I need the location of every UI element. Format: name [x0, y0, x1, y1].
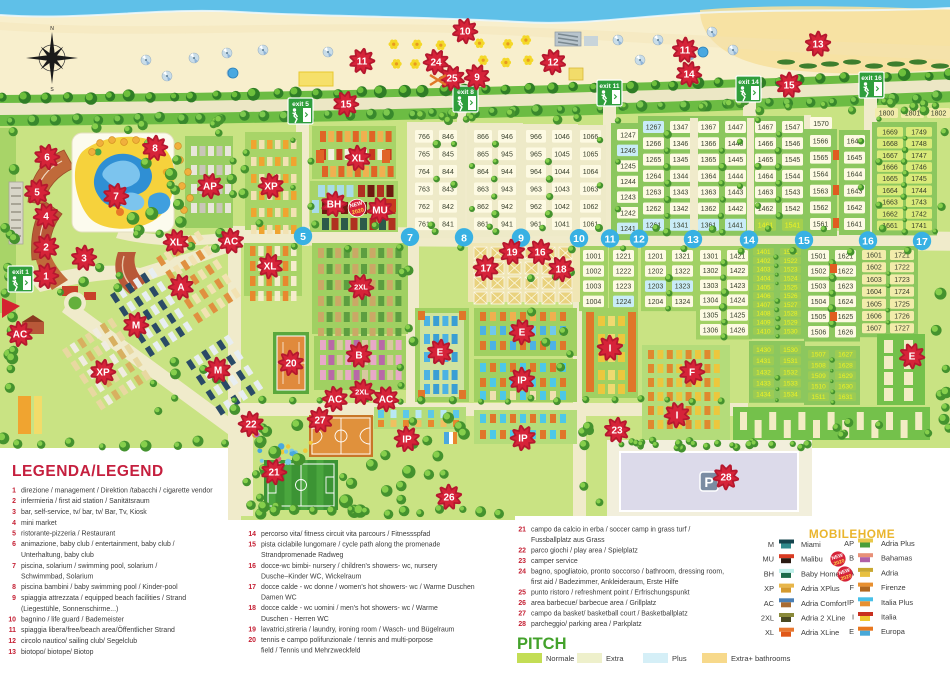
svg-text:762: 762: [418, 204, 430, 211]
svg-text:area barbecue/ barbecue area /: area barbecue/ barbecue area / Grillplat…: [531, 600, 657, 607]
svg-text:1544: 1544: [785, 173, 801, 180]
svg-text:1421: 1421: [730, 253, 746, 260]
svg-text:direzione / management / Direk: direzione / management / Direktion /taba…: [21, 488, 213, 495]
svg-text:1744: 1744: [911, 188, 927, 195]
svg-text:1726: 1726: [894, 314, 910, 321]
svg-text:1464: 1464: [758, 173, 774, 180]
svg-text:1364: 1364: [701, 173, 717, 180]
svg-text:ristorante-pizzeria / Restaura: ristorante-pizzeria / Restaurant: [21, 531, 115, 538]
svg-text:Firenze: Firenze: [881, 583, 906, 592]
svg-text:1362: 1362: [701, 206, 717, 213]
svg-text:1341: 1341: [673, 222, 689, 229]
svg-text:1511: 1511: [811, 394, 826, 401]
svg-text:1602: 1602: [866, 265, 882, 272]
svg-text:1263: 1263: [646, 190, 662, 197]
svg-text:1447: 1447: [728, 125, 744, 132]
svg-text:1045: 1045: [554, 151, 570, 158]
svg-text:parcheggio/ parking area / Par: parcheggio/ parking area / Parkplatz: [531, 621, 642, 628]
svg-text:1343: 1343: [673, 190, 689, 197]
svg-text:1002: 1002: [586, 269, 602, 276]
svg-text:1529: 1529: [783, 320, 798, 327]
svg-text:bagnino / life guard / Bademei: bagnino / life guard / Bademeister: [21, 617, 125, 624]
svg-text:27: 27: [314, 416, 326, 427]
svg-text:docce-wc bimbi- nursery / chil: docce-wc bimbi- nursery / children's sho…: [261, 563, 438, 570]
svg-text:966: 966: [530, 134, 542, 141]
svg-text:10: 10: [8, 617, 16, 624]
svg-text:22: 22: [245, 420, 257, 431]
svg-text:1267: 1267: [646, 125, 662, 132]
svg-text:24: 24: [518, 569, 526, 576]
svg-text:animazione, baby club / entert: animazione, baby club / entertainment, b…: [21, 541, 175, 548]
svg-text:1066: 1066: [583, 134, 599, 141]
svg-text:5: 5: [300, 231, 306, 243]
svg-text:1203: 1203: [648, 284, 664, 291]
svg-text:1242: 1242: [620, 210, 636, 217]
svg-text:1666: 1666: [882, 165, 898, 172]
svg-text:12: 12: [8, 638, 16, 645]
svg-text:19: 19: [248, 626, 256, 633]
svg-text:E: E: [909, 352, 916, 363]
svg-text:1402: 1402: [756, 258, 771, 265]
svg-text:Extra: Extra: [606, 654, 624, 663]
svg-text:841: 841: [442, 221, 454, 228]
svg-text:1668: 1668: [882, 141, 898, 148]
svg-text:1346: 1346: [673, 141, 689, 148]
svg-text:1301: 1301: [703, 253, 719, 260]
svg-text:2XL: 2XL: [761, 614, 774, 623]
svg-text:1347: 1347: [673, 125, 689, 132]
svg-text:(Liegestühle, Sonnenschirme...: (Liegestühle, Sonnenschirme...): [21, 606, 118, 613]
svg-text:1631: 1631: [838, 394, 853, 401]
svg-text:964: 964: [530, 169, 542, 176]
svg-text:21: 21: [518, 527, 526, 534]
svg-text:1565: 1565: [813, 155, 829, 162]
svg-text:exit 8: exit 8: [457, 89, 474, 96]
svg-text:Plus: Plus: [672, 654, 687, 663]
svg-text:XP: XP: [764, 584, 774, 593]
svg-text:field / Tennis und Mehrzweckfe: field / Tennis und Mehrzweckfeld: [261, 648, 361, 655]
svg-text:864: 864: [477, 169, 489, 176]
svg-text:1408: 1408: [756, 311, 771, 318]
svg-text:E: E: [849, 627, 854, 636]
svg-text:763: 763: [418, 186, 430, 193]
svg-text:1623: 1623: [838, 284, 854, 291]
svg-text:6: 6: [44, 153, 50, 164]
svg-text:XP: XP: [96, 368, 110, 379]
svg-text:1: 1: [12, 488, 16, 495]
svg-text:1545: 1545: [785, 157, 801, 164]
svg-text:AC: AC: [13, 330, 27, 341]
svg-text:1630: 1630: [838, 384, 853, 391]
svg-text:1467: 1467: [758, 125, 774, 132]
svg-text:1244: 1244: [620, 179, 636, 186]
svg-text:11: 11: [357, 57, 368, 68]
svg-text:8: 8: [461, 232, 467, 244]
svg-text:14: 14: [248, 531, 256, 538]
svg-text:764: 764: [418, 169, 430, 176]
svg-text:punto ristoro / refreshment po: punto ristoro / refreshment point / Erfr…: [531, 590, 690, 597]
svg-text:1662: 1662: [882, 211, 898, 218]
svg-text:5: 5: [12, 531, 16, 538]
svg-text:845: 845: [442, 151, 454, 158]
svg-text:IP: IP: [847, 598, 854, 607]
svg-text:1543: 1543: [785, 190, 801, 197]
svg-text:Normale: Normale: [546, 654, 574, 663]
svg-text:1507: 1507: [811, 352, 826, 359]
svg-text:943: 943: [501, 186, 513, 193]
svg-text:1442: 1442: [728, 206, 744, 213]
svg-text:Extra+ bathrooms: Extra+ bathrooms: [731, 654, 791, 663]
svg-text:1065: 1065: [583, 151, 599, 158]
svg-text:MU: MU: [372, 206, 388, 217]
svg-text:22: 22: [518, 548, 526, 555]
svg-text:parco giochi / play area / Spi: parco giochi / play area / Spielplatz: [531, 548, 638, 555]
svg-text:1445: 1445: [728, 157, 744, 164]
svg-text:20: 20: [285, 359, 297, 370]
svg-text:13: 13: [812, 40, 824, 51]
svg-text:Unterhaltung, baby club: Unterhaltung, baby club: [21, 552, 94, 559]
svg-text:1262: 1262: [646, 206, 662, 213]
svg-text:Adria XPlus: Adria XPlus: [801, 584, 840, 593]
svg-text:1243: 1243: [620, 195, 636, 202]
svg-text:28: 28: [720, 473, 732, 484]
svg-text:I: I: [852, 613, 854, 622]
svg-text:13: 13: [687, 234, 699, 246]
svg-text:766: 766: [418, 134, 430, 141]
svg-text:1532: 1532: [783, 369, 798, 376]
svg-text:1722: 1722: [894, 265, 910, 272]
svg-text:1526: 1526: [783, 293, 798, 300]
svg-text:Adria Comfort: Adria Comfort: [801, 599, 847, 608]
svg-text:1367: 1367: [701, 125, 717, 132]
svg-text:1528: 1528: [783, 311, 798, 318]
svg-text:spiaggia attrezzata / equipped: spiaggia attrezzata / equipped beach fac…: [21, 595, 186, 602]
svg-text:842: 842: [442, 204, 454, 211]
svg-text:1323: 1323: [675, 284, 691, 291]
svg-text:docce calde - wc uomini / men': docce calde - wc uomini / men's hot show…: [261, 605, 438, 612]
svg-text:Adria Plus: Adria Plus: [881, 539, 915, 548]
svg-text:865: 865: [477, 151, 489, 158]
svg-text:M: M: [214, 366, 222, 377]
svg-text:1527: 1527: [783, 302, 798, 309]
svg-text:1441: 1441: [728, 222, 744, 229]
svg-text:1743: 1743: [911, 200, 927, 207]
svg-text:17: 17: [480, 264, 492, 275]
svg-text:1525: 1525: [783, 284, 798, 291]
svg-text:14: 14: [683, 70, 695, 81]
svg-text:1342: 1342: [673, 206, 689, 213]
svg-text:1410: 1410: [756, 328, 771, 335]
svg-text:862: 862: [477, 204, 489, 211]
svg-text:1724: 1724: [894, 289, 910, 296]
svg-text:1523: 1523: [783, 267, 798, 274]
svg-text:bar, self-service, tv/ bar, tv: bar, self-service, tv/ bar, tv/ Bar, Tv,…: [21, 509, 147, 516]
svg-text:1463: 1463: [758, 190, 774, 197]
svg-text:F: F: [689, 368, 695, 379]
svg-text:mini market: mini market: [21, 520, 57, 527]
svg-text:exit 5: exit 5: [292, 101, 309, 108]
svg-text:Adria 2 XLine: Adria 2 XLine: [801, 614, 845, 623]
svg-text:1423: 1423: [730, 283, 746, 290]
svg-text:campo da calcio in erba / socc: campo da calcio in erba / soccer camp in…: [531, 527, 690, 534]
svg-text:25: 25: [446, 74, 458, 85]
svg-text:1748: 1748: [911, 141, 927, 148]
svg-text:1570: 1570: [813, 121, 829, 128]
svg-text:PITCH: PITCH: [517, 635, 567, 653]
svg-text:3: 3: [12, 509, 16, 516]
svg-text:1305: 1305: [703, 313, 719, 320]
svg-text:1501: 1501: [811, 253, 827, 260]
svg-text:23: 23: [611, 426, 623, 437]
svg-text:1530: 1530: [783, 328, 798, 335]
svg-text:Strandpromenade Radweg: Strandpromenade Radweg: [261, 552, 344, 559]
svg-text:1534: 1534: [783, 392, 798, 399]
svg-text:1509: 1509: [811, 373, 826, 380]
svg-text:1800: 1800: [879, 111, 895, 118]
svg-text:1505: 1505: [811, 314, 827, 321]
svg-text:962: 962: [530, 204, 542, 211]
svg-text:Dusche–Kinder WC, Wickelraum: Dusche–Kinder WC, Wickelraum: [261, 573, 362, 580]
svg-text:infermieria / first aid statio: infermieria / first aid station / Sanitä…: [21, 498, 150, 505]
svg-text:26: 26: [518, 600, 526, 607]
svg-text:1541: 1541: [785, 222, 801, 229]
svg-text:Schwimmbad, Solarium: Schwimmbad, Solarium: [21, 574, 94, 581]
svg-text:2: 2: [43, 243, 49, 254]
svg-text:8: 8: [152, 144, 158, 155]
svg-text:exit 14: exit 14: [738, 79, 759, 86]
svg-text:1746: 1746: [911, 165, 927, 172]
svg-text:BH: BH: [764, 569, 774, 578]
svg-text:piscina bambini / baby swimmin: piscina bambini / baby swimming pool / K…: [21, 584, 178, 591]
svg-text:1062: 1062: [583, 204, 599, 211]
svg-text:15: 15: [340, 100, 352, 111]
svg-text:1223: 1223: [616, 284, 632, 291]
svg-text:18: 18: [555, 265, 567, 276]
svg-text:exit 11: exit 11: [599, 83, 619, 90]
svg-text:21: 21: [268, 468, 280, 479]
svg-text:1508: 1508: [811, 362, 826, 369]
svg-text:1802: 1802: [931, 111, 947, 118]
svg-text:1264: 1264: [646, 173, 662, 180]
svg-text:1247: 1247: [620, 132, 636, 139]
svg-text:1443: 1443: [728, 190, 744, 197]
svg-text:Adria XLine: Adria XLine: [801, 628, 839, 637]
svg-text:2XL: 2XL: [355, 388, 369, 397]
svg-text:7: 7: [12, 563, 16, 570]
svg-text:piscina, solarium / swimming p: piscina, solarium / swimming pool, solar…: [21, 563, 157, 570]
svg-text:11: 11: [680, 46, 691, 57]
svg-text:AC: AC: [224, 237, 238, 248]
svg-text:20: 20: [248, 637, 256, 644]
svg-text:16: 16: [534, 248, 546, 259]
svg-text:17: 17: [248, 584, 256, 591]
svg-text:16: 16: [248, 563, 256, 570]
svg-text:1042: 1042: [554, 204, 570, 211]
svg-text:945: 945: [501, 151, 513, 158]
svg-text:1644: 1644: [847, 172, 863, 179]
svg-text:1246: 1246: [620, 148, 636, 155]
svg-text:XP: XP: [264, 182, 278, 193]
svg-text:Adria: Adria: [881, 568, 899, 577]
svg-text:1409: 1409: [756, 320, 771, 327]
svg-text:pista ciclabile lungomare / cy: pista ciclabile lungomare / cycle path a…: [261, 542, 440, 549]
svg-text:1201: 1201: [648, 253, 664, 260]
svg-text:XL: XL: [352, 154, 365, 165]
svg-text:1605: 1605: [866, 301, 882, 308]
svg-text:1: 1: [43, 272, 49, 283]
svg-text:1504: 1504: [811, 299, 827, 306]
svg-text:IP: IP: [517, 376, 527, 387]
svg-text:1204: 1204: [648, 299, 664, 306]
svg-text:Miami: Miami: [801, 540, 821, 549]
svg-text:AP: AP: [203, 182, 217, 193]
svg-text:XL: XL: [170, 238, 183, 249]
svg-text:1727: 1727: [894, 326, 910, 333]
svg-text:M: M: [132, 321, 140, 332]
svg-text:LEGENDA/LEGEND: LEGENDA/LEGEND: [12, 463, 164, 480]
svg-text:XL: XL: [264, 262, 277, 273]
svg-text:1502: 1502: [811, 269, 827, 276]
svg-text:1302: 1302: [703, 268, 719, 275]
svg-text:AC: AC: [328, 395, 342, 406]
svg-text:1041: 1041: [554, 221, 570, 228]
svg-text:1405: 1405: [756, 284, 771, 291]
svg-text:4: 4: [12, 520, 16, 527]
svg-text:1506: 1506: [811, 329, 827, 336]
svg-text:1604: 1604: [866, 289, 882, 296]
svg-text:1426: 1426: [730, 327, 746, 334]
svg-text:1322: 1322: [675, 269, 691, 276]
svg-text:1407: 1407: [756, 302, 771, 309]
svg-text:25: 25: [518, 590, 526, 597]
svg-text:1533: 1533: [783, 381, 798, 388]
svg-text:1221: 1221: [616, 253, 632, 260]
svg-text:9: 9: [474, 73, 480, 84]
svg-text:percorso vita/ fitness circuit: percorso vita/ fitness circuit vita parc…: [261, 531, 430, 538]
svg-text:1431: 1431: [756, 358, 771, 365]
svg-text:Italia Plus: Italia Plus: [881, 598, 913, 607]
svg-text:10: 10: [459, 27, 471, 38]
svg-text:Baby Home: Baby Home: [801, 569, 840, 578]
svg-text:6: 6: [12, 541, 16, 548]
svg-text:1266: 1266: [646, 141, 662, 148]
svg-text:1224: 1224: [616, 299, 632, 306]
svg-text:2: 2: [12, 498, 16, 505]
svg-text:11: 11: [9, 627, 16, 634]
svg-text:1345: 1345: [673, 157, 689, 164]
svg-text:1303: 1303: [703, 283, 719, 290]
svg-text:1046: 1046: [554, 134, 570, 141]
svg-text:1444: 1444: [728, 173, 744, 180]
svg-text:844: 844: [442, 169, 454, 176]
svg-text:Duschen - Herren WC: Duschen - Herren WC: [261, 616, 329, 623]
svg-text:N: N: [50, 26, 54, 32]
svg-text:F: F: [849, 583, 854, 592]
svg-text:12: 12: [547, 58, 559, 69]
svg-text:1725: 1725: [894, 301, 910, 308]
svg-text:15: 15: [783, 81, 795, 92]
svg-text:1043: 1043: [554, 186, 570, 193]
svg-text:1664: 1664: [882, 188, 898, 195]
svg-text:first aid / Badezimmer, Anklei: first aid / Badezimmer, Ankleideraum, Er…: [531, 579, 679, 586]
svg-text:14: 14: [743, 235, 755, 247]
svg-text:AC: AC: [764, 599, 775, 608]
svg-text:BH: BH: [327, 200, 341, 211]
svg-text:1627: 1627: [838, 352, 853, 359]
svg-text:1642: 1642: [847, 205, 863, 212]
svg-text:spiaggia libera/free/beach are: spiaggia libera/free/beach area/Öffentli…: [21, 626, 175, 634]
svg-text:1433: 1433: [756, 381, 771, 388]
svg-text:942: 942: [501, 204, 513, 211]
svg-text:866: 866: [477, 134, 489, 141]
svg-text:1321: 1321: [675, 253, 691, 260]
svg-text:1434: 1434: [756, 392, 771, 399]
svg-text:1063: 1063: [583, 186, 599, 193]
svg-text:1522: 1522: [783, 258, 798, 265]
svg-text:1004: 1004: [586, 299, 602, 306]
svg-text:1749: 1749: [911, 129, 927, 136]
svg-text:1306: 1306: [703, 327, 719, 334]
svg-text:1626: 1626: [838, 329, 854, 336]
svg-text:13: 13: [8, 649, 16, 656]
svg-text:18: 18: [248, 605, 256, 612]
svg-text:B: B: [849, 554, 854, 563]
svg-text:4: 4: [43, 212, 49, 223]
svg-text:1363: 1363: [701, 190, 717, 197]
svg-text:963: 963: [530, 186, 542, 193]
svg-text:1432: 1432: [756, 369, 771, 376]
svg-text:1401: 1401: [756, 249, 771, 256]
svg-text:1324: 1324: [675, 299, 691, 306]
svg-text:1404: 1404: [756, 276, 771, 283]
svg-text:1524: 1524: [783, 276, 798, 283]
svg-text:Bahamas: Bahamas: [881, 554, 913, 563]
svg-text:12: 12: [633, 234, 645, 246]
svg-text:AP: AP: [844, 539, 854, 548]
svg-text:1625: 1625: [838, 314, 854, 321]
svg-text:2XL: 2XL: [354, 283, 368, 292]
svg-text:1665: 1665: [882, 176, 898, 183]
svg-text:IP: IP: [402, 435, 412, 446]
svg-text:941: 941: [501, 221, 513, 228]
svg-text:circolo nautico/ sailing club/: circolo nautico/ sailing club/ Segelclub: [21, 638, 137, 645]
svg-text:1503: 1503: [811, 284, 827, 291]
svg-text:1366: 1366: [701, 141, 717, 148]
svg-text:7: 7: [113, 192, 119, 203]
svg-text:3: 3: [81, 254, 87, 265]
svg-text:944: 944: [501, 169, 513, 176]
svg-text:M: M: [768, 540, 774, 549]
svg-text:P: P: [704, 474, 713, 490]
svg-text:1624: 1624: [838, 299, 854, 306]
svg-text:Damen WC: Damen WC: [261, 595, 297, 602]
svg-text:1245: 1245: [620, 164, 636, 171]
svg-text:MU: MU: [763, 555, 775, 564]
svg-text:1344: 1344: [673, 173, 689, 180]
svg-text:1546: 1546: [785, 141, 801, 148]
svg-text:946: 946: [501, 134, 513, 141]
svg-text:765: 765: [418, 151, 430, 158]
svg-text:1304: 1304: [703, 298, 719, 305]
svg-text:1222: 1222: [616, 269, 632, 276]
svg-text:1741: 1741: [911, 223, 927, 230]
svg-text:27: 27: [518, 611, 526, 618]
svg-text:1265: 1265: [646, 157, 662, 164]
svg-text:exit 16: exit 16: [861, 75, 882, 82]
svg-text:17: 17: [916, 236, 928, 248]
svg-text:tennis e campo polifunzionale: tennis e campo polifunzionale / tennis a…: [261, 637, 433, 644]
svg-text:1566: 1566: [813, 139, 829, 146]
